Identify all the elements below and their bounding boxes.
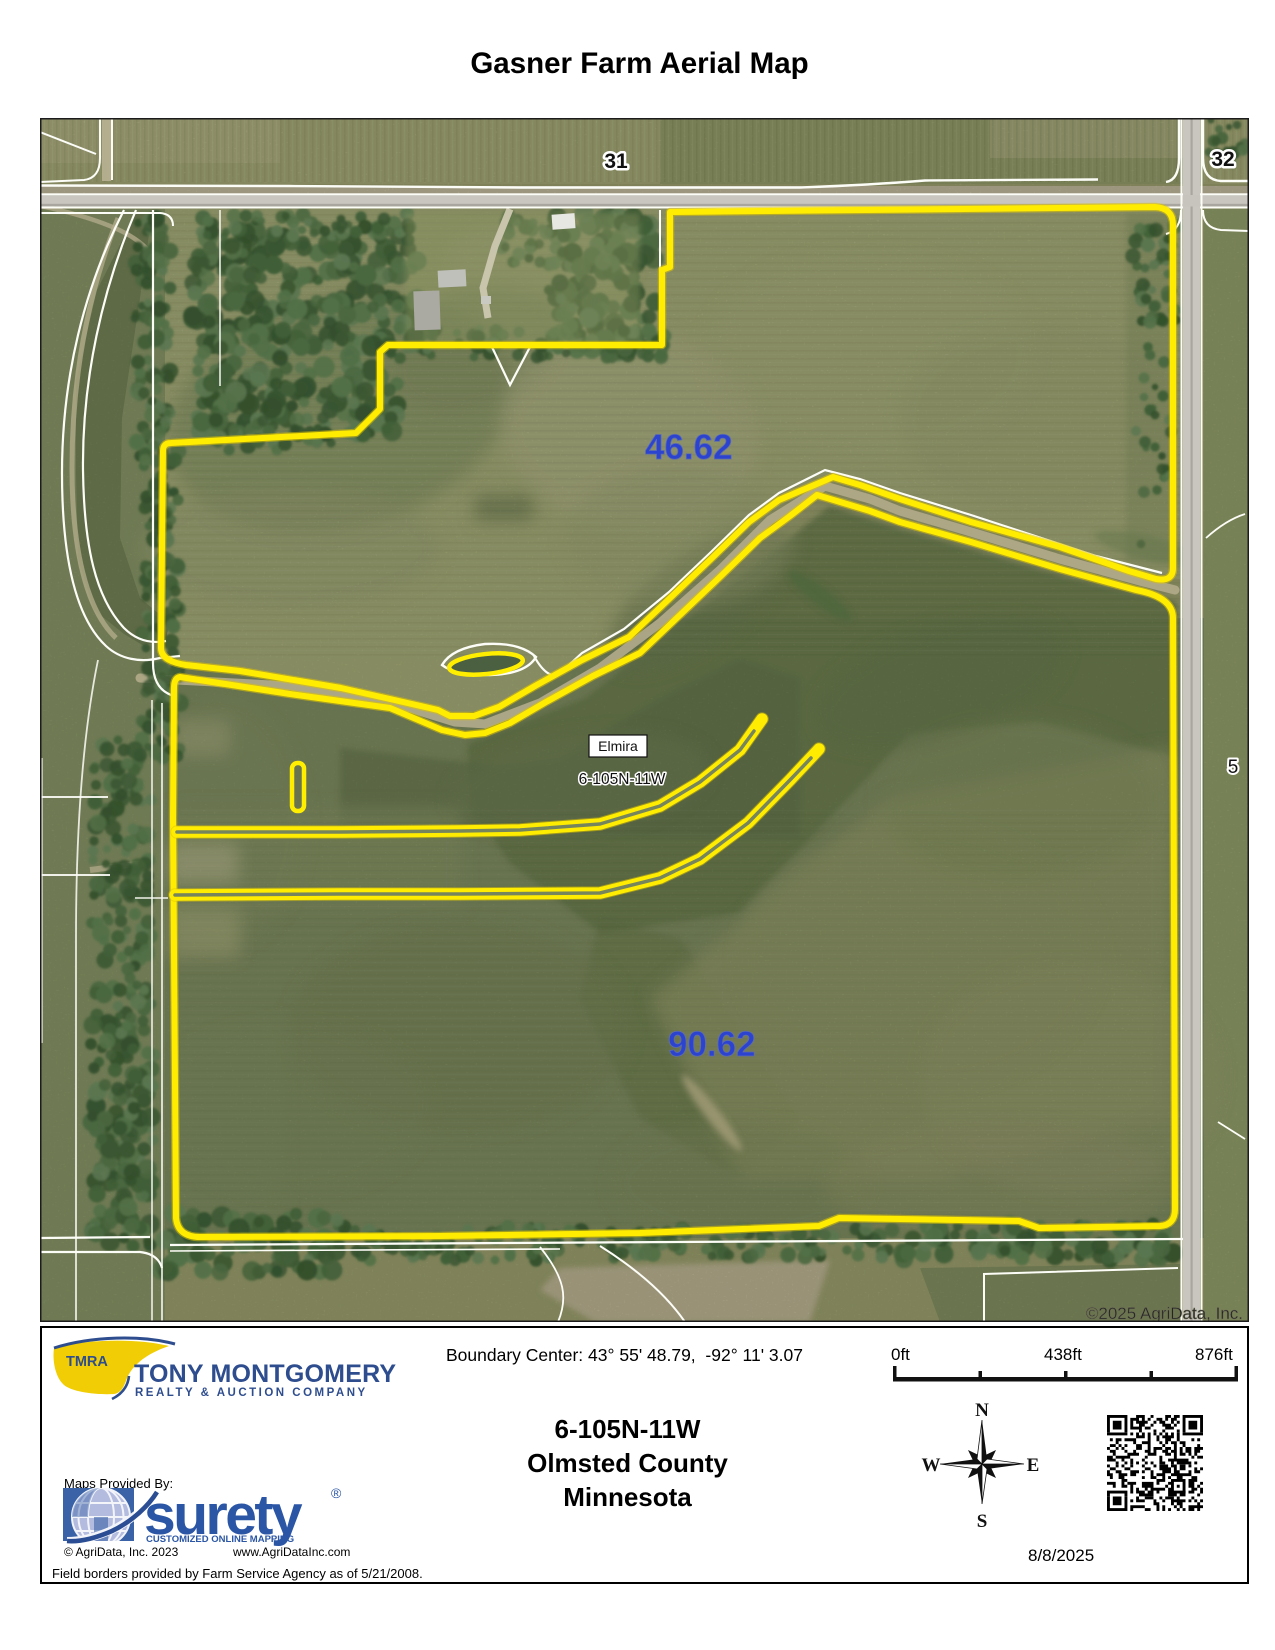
svg-text:90.62: 90.62: [668, 1025, 756, 1064]
svg-text:46.62: 46.62: [645, 428, 733, 467]
svg-text:S: S: [977, 1511, 988, 1527]
svg-text:32: 32: [1211, 148, 1234, 171]
svg-text:©2025 AgriData, Inc.: ©2025 AgriData, Inc.: [1086, 1304, 1243, 1322]
svg-text:31: 31: [604, 150, 628, 173]
svg-text:6-105N-11W: 6-105N-11W: [579, 771, 666, 788]
svg-text:Elmira: Elmira: [598, 738, 638, 754]
svg-text:E: E: [1027, 1455, 1040, 1476]
svg-text:REALTY & AUCTION COMPANY: REALTY & AUCTION COMPANY: [135, 1387, 368, 1399]
svg-text:5: 5: [1228, 757, 1239, 778]
svg-text:TONY MONTGOMERY: TONY MONTGOMERY: [134, 1360, 396, 1388]
svg-text:TMRA: TMRA: [66, 1354, 108, 1370]
svg-text:N: N: [975, 1400, 989, 1421]
svg-text:CUSTOMIZED ONLINE MAPPING: CUSTOMIZED ONLINE MAPPING: [146, 1534, 294, 1545]
svg-text:®: ®: [331, 1485, 342, 1501]
svg-text:W: W: [922, 1455, 941, 1476]
